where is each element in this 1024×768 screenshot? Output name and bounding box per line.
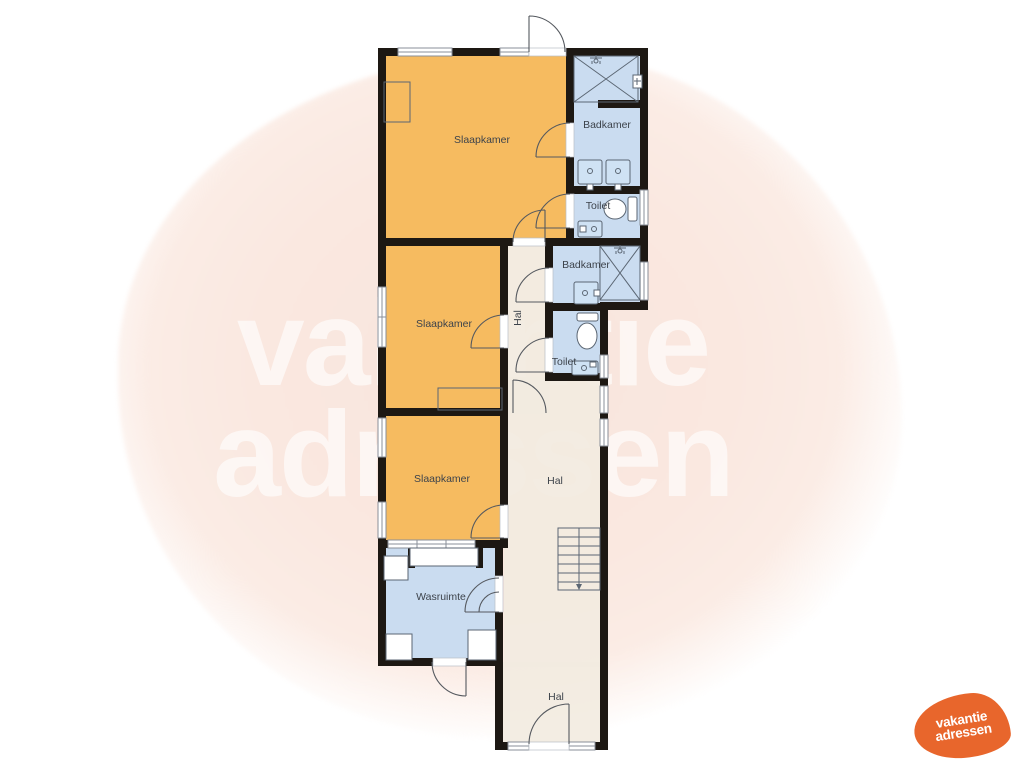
label-badkamer-1: Badkamer	[583, 119, 631, 131]
sink-icon	[578, 221, 602, 237]
window	[378, 502, 386, 538]
label-badkamer-2: Badkamer	[562, 259, 610, 271]
door-arc	[432, 662, 466, 696]
cabinet-icon	[384, 556, 408, 580]
label-wasruimte: Wasruimte	[416, 591, 466, 603]
label-toilet-2: Toilet	[552, 356, 577, 368]
floor-plan: Slaapkamer Badkamer Toilet Slaapkamer Ha…	[0, 0, 1024, 768]
label-hal-main: Hal	[547, 475, 563, 487]
window	[500, 48, 529, 56]
washer-icon	[468, 630, 496, 660]
window	[378, 287, 386, 347]
washer-icon	[386, 634, 412, 660]
label-toilet-1: Toilet	[586, 200, 611, 212]
toilet-icon	[577, 313, 598, 349]
floorplan-page: vakantie adressen	[0, 0, 1024, 768]
window	[378, 418, 386, 457]
counter-icon	[410, 548, 478, 566]
shower-head-icon	[633, 75, 642, 88]
window	[600, 355, 608, 378]
window	[388, 540, 475, 548]
label-slaapkamer-2: Slaapkamer	[416, 318, 473, 330]
logo-text: vakantie adressen	[932, 709, 992, 744]
window	[508, 742, 529, 750]
window	[398, 48, 452, 56]
door-arc	[529, 16, 565, 52]
window	[569, 742, 595, 750]
room-hal-entry	[499, 662, 602, 746]
sink-icon	[574, 282, 600, 304]
window	[600, 386, 608, 413]
label-slaapkamer-3: Slaapkamer	[414, 473, 471, 485]
label-hal-entry: Hal	[548, 691, 564, 703]
window	[600, 419, 608, 446]
label-slaapkamer-1: Slaapkamer	[454, 134, 511, 146]
window	[640, 262, 648, 300]
room-slaapkamer-1	[382, 52, 570, 242]
room-hal-main	[504, 377, 602, 667]
label-hal-corridor: Hal	[512, 310, 524, 326]
window	[640, 190, 648, 225]
